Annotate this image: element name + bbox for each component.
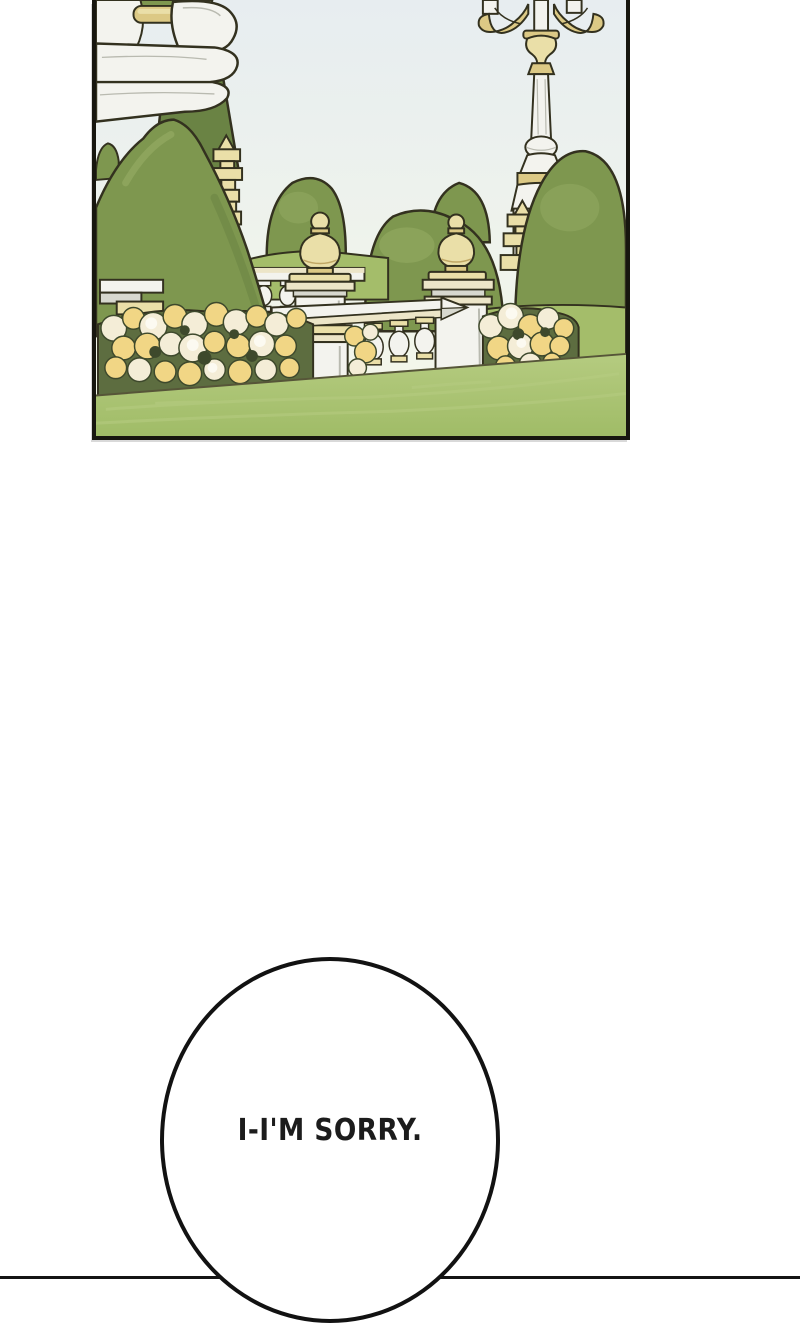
- webtoon-strip: I-I'M SORRY.: [0, 0, 800, 1280]
- comic-panel-garden: [92, 0, 630, 440]
- speech-bubble-text: I-I'M SORRY.: [238, 1113, 423, 1148]
- garden-illustration: [96, 0, 626, 436]
- speech-bubble: I-I'M SORRY.: [160, 957, 500, 1323]
